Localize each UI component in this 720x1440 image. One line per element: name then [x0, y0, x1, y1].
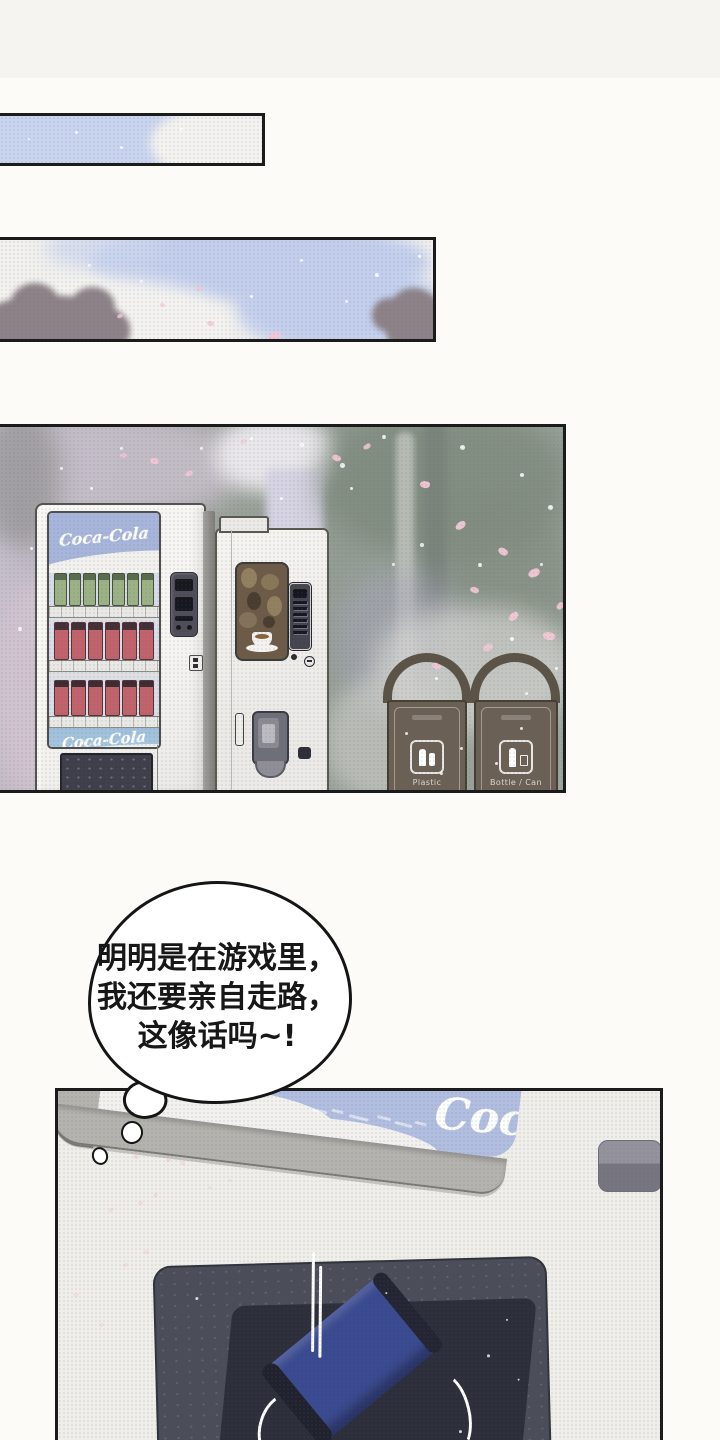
panel-vending-scene: Coca-Cola Coca-Cola	[0, 424, 566, 793]
bubble-line-2: 我还要亲自走路，	[88, 978, 346, 1017]
bubble-line-1: 明明是在游戏里，	[88, 939, 346, 978]
panel-sky-narrow	[0, 113, 265, 166]
bokeh-dots	[0, 240, 433, 339]
comic-page: Coca-Cola Coca-Cola	[0, 0, 720, 1440]
page-top-band	[0, 0, 720, 78]
bokeh-dots	[0, 116, 262, 163]
panel-machine-closeup: Coca	[55, 1088, 663, 1440]
bokeh-dots	[0, 427, 563, 790]
panel-sky-wide	[0, 237, 436, 342]
bubble-line-3: 这像话吗~!	[88, 1017, 346, 1056]
petals	[58, 1091, 660, 1440]
speech-bubble-text: 明明是在游戏里， 我还要亲自走路， 这像话吗~!	[88, 939, 346, 1056]
